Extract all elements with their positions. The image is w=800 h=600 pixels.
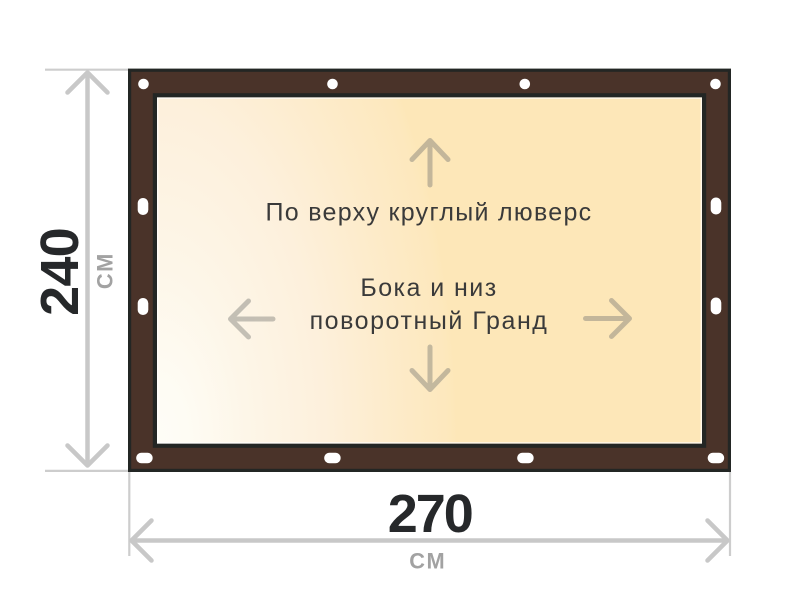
svg-text:По верху круглый люверс: По верху круглый люверс <box>266 199 593 227</box>
svg-text:240: 240 <box>30 228 90 316</box>
svg-text:СМ: СМ <box>409 548 446 573</box>
svg-text:Бока и низ: Бока и низ <box>360 274 497 302</box>
svg-text:270: 270 <box>388 484 472 544</box>
svg-text:поворотный Гранд: поворотный Гранд <box>310 307 549 335</box>
svg-text:СМ: СМ <box>92 252 117 289</box>
